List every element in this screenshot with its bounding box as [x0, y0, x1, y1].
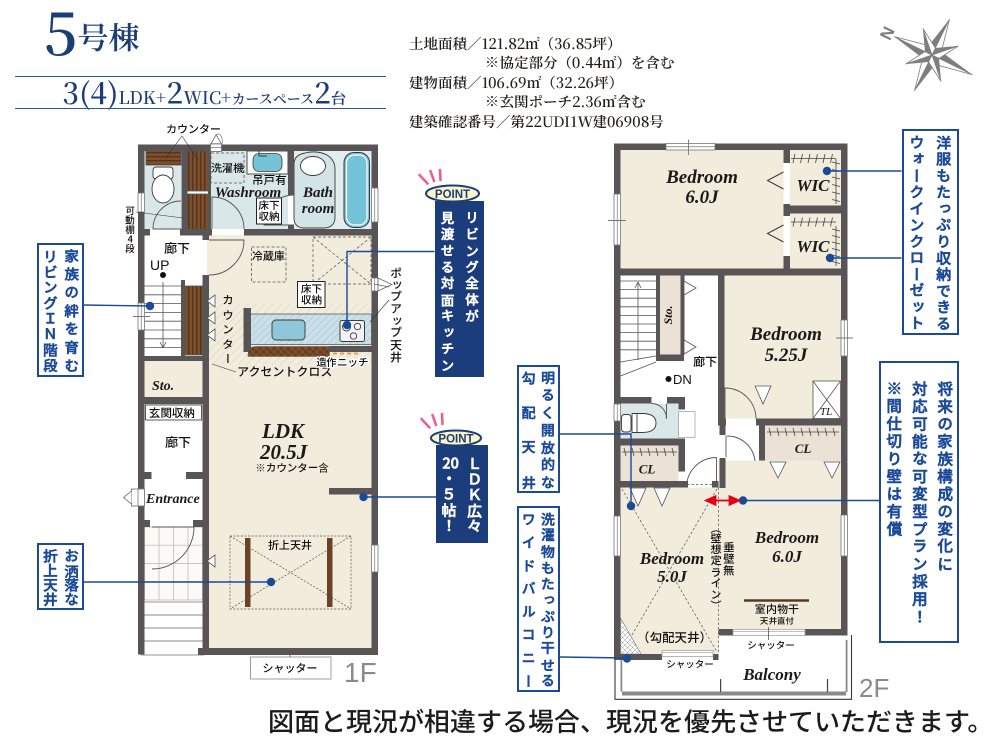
svg-text:カウンター: カウンター [220, 294, 236, 367]
svg-text:Balcony: Balcony [742, 665, 801, 684]
svg-text:2F: 2F [859, 673, 889, 703]
svg-text:垂壁無: 垂壁無 [721, 541, 737, 576]
svg-text:5.0J: 5.0J [657, 567, 687, 586]
svg-text:Bedroom: Bedroom [639, 549, 704, 568]
svg-text:吊戸有: 吊戸有 [252, 172, 287, 188]
svg-text:WIC: WIC [796, 237, 830, 256]
svg-text:収納: 収納 [301, 293, 322, 308]
svg-text:Bath: Bath [302, 185, 333, 201]
svg-text:Sto.: Sto. [661, 305, 675, 324]
svg-text:1F: 1F [344, 657, 377, 688]
svg-text:（勾配天井）: （勾配天井） [637, 627, 712, 646]
svg-text:6.0J: 6.0J [772, 547, 802, 566]
svg-text:Bedroom: Bedroom [749, 324, 822, 345]
svg-text:Sto.: Sto. [152, 379, 174, 394]
svg-text:造作ニッチ: 造作ニッチ [316, 355, 369, 370]
svg-text:廊下: 廊下 [693, 353, 717, 370]
svg-text:DN: DN [673, 372, 692, 387]
svg-text:6.0J: 6.0J [685, 187, 719, 208]
svg-text:カウンター: カウンター [166, 121, 221, 137]
svg-text:※カウンター含: ※カウンター含 [255, 461, 329, 476]
svg-text:room: room [302, 201, 335, 217]
svg-text:廊下: 廊下 [165, 432, 191, 451]
svg-text:洗濯機: 洗濯機 [211, 160, 245, 176]
svg-text:WIC: WIC [796, 176, 830, 195]
svg-text:廊下: 廊下 [164, 238, 190, 257]
svg-text:POINT: POINT [435, 189, 470, 201]
svg-text:収納: 収納 [259, 209, 280, 224]
svg-text:Bedroom: Bedroom [754, 528, 819, 547]
svg-text:Bedroom: Bedroom [665, 167, 738, 188]
svg-text:N: N [876, 24, 898, 43]
svg-text:UP: UP [150, 257, 169, 273]
svg-text:ポップアップ天井: ポップアップ天井 [388, 266, 405, 363]
svg-text:Entrance: Entrance [145, 492, 200, 507]
svg-text:CL: CL [639, 462, 656, 477]
svg-text:TL: TL [820, 406, 832, 418]
svg-text:玄関収納: 玄関収納 [149, 405, 195, 421]
svg-text:シャッター: シャッター [263, 660, 318, 676]
svg-text:シャッター: シャッター [747, 638, 795, 652]
svg-text:天井直付: 天井直付 [760, 615, 794, 627]
svg-text:折上天井: 折上天井 [268, 537, 312, 553]
svg-text:冷蔵庫: 冷蔵庫 [252, 248, 285, 264]
svg-text:可動棚4段: 可動棚4段 [124, 203, 135, 255]
svg-text:CL: CL [795, 441, 812, 456]
svg-text:5.25J: 5.25J [765, 345, 808, 366]
svg-text:シャッター: シャッター [666, 657, 714, 671]
